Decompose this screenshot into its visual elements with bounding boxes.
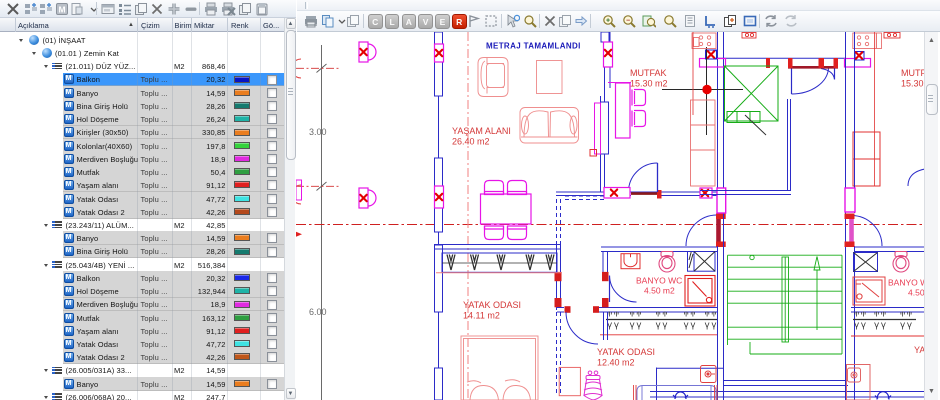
svg-text:+: + [606, 18, 610, 25]
svg-text:26.40 m2: 26.40 m2 [452, 137, 490, 147]
svg-text:15.30 m2: 15.30 m2 [630, 79, 668, 89]
svg-text:3.00: 3.00 [309, 127, 327, 137]
svg-text:BANYO W: BANYO W [888, 278, 928, 288]
svg-text:YATAK ODASI: YATAK ODASI [463, 300, 521, 310]
svg-text:YAŞAM ALANI: YAŞAM ALANI [452, 126, 511, 136]
svg-text:6.00: 6.00 [309, 307, 327, 317]
svg-text:M: M [58, 5, 65, 15]
svg-text:14.11 m2: 14.11 m2 [463, 311, 500, 321]
svg-text:12.40 m2: 12.40 m2 [597, 357, 635, 367]
svg-text:METRAJ TAMAMLANDI: METRAJ TAMAMLANDI [486, 41, 581, 50]
svg-text:MUTF: MUTF [901, 68, 926, 78]
svg-text:MUTFAK: MUTFAK [630, 68, 667, 78]
svg-text:15.30: 15.30 [901, 79, 924, 89]
svg-text:BANYO WC: BANYO WC [636, 276, 682, 286]
svg-text:4.50 m2: 4.50 m2 [644, 286, 675, 296]
svg-text:−: − [626, 18, 630, 25]
svg-text:YATAK ODASI: YATAK ODASI [597, 347, 655, 357]
